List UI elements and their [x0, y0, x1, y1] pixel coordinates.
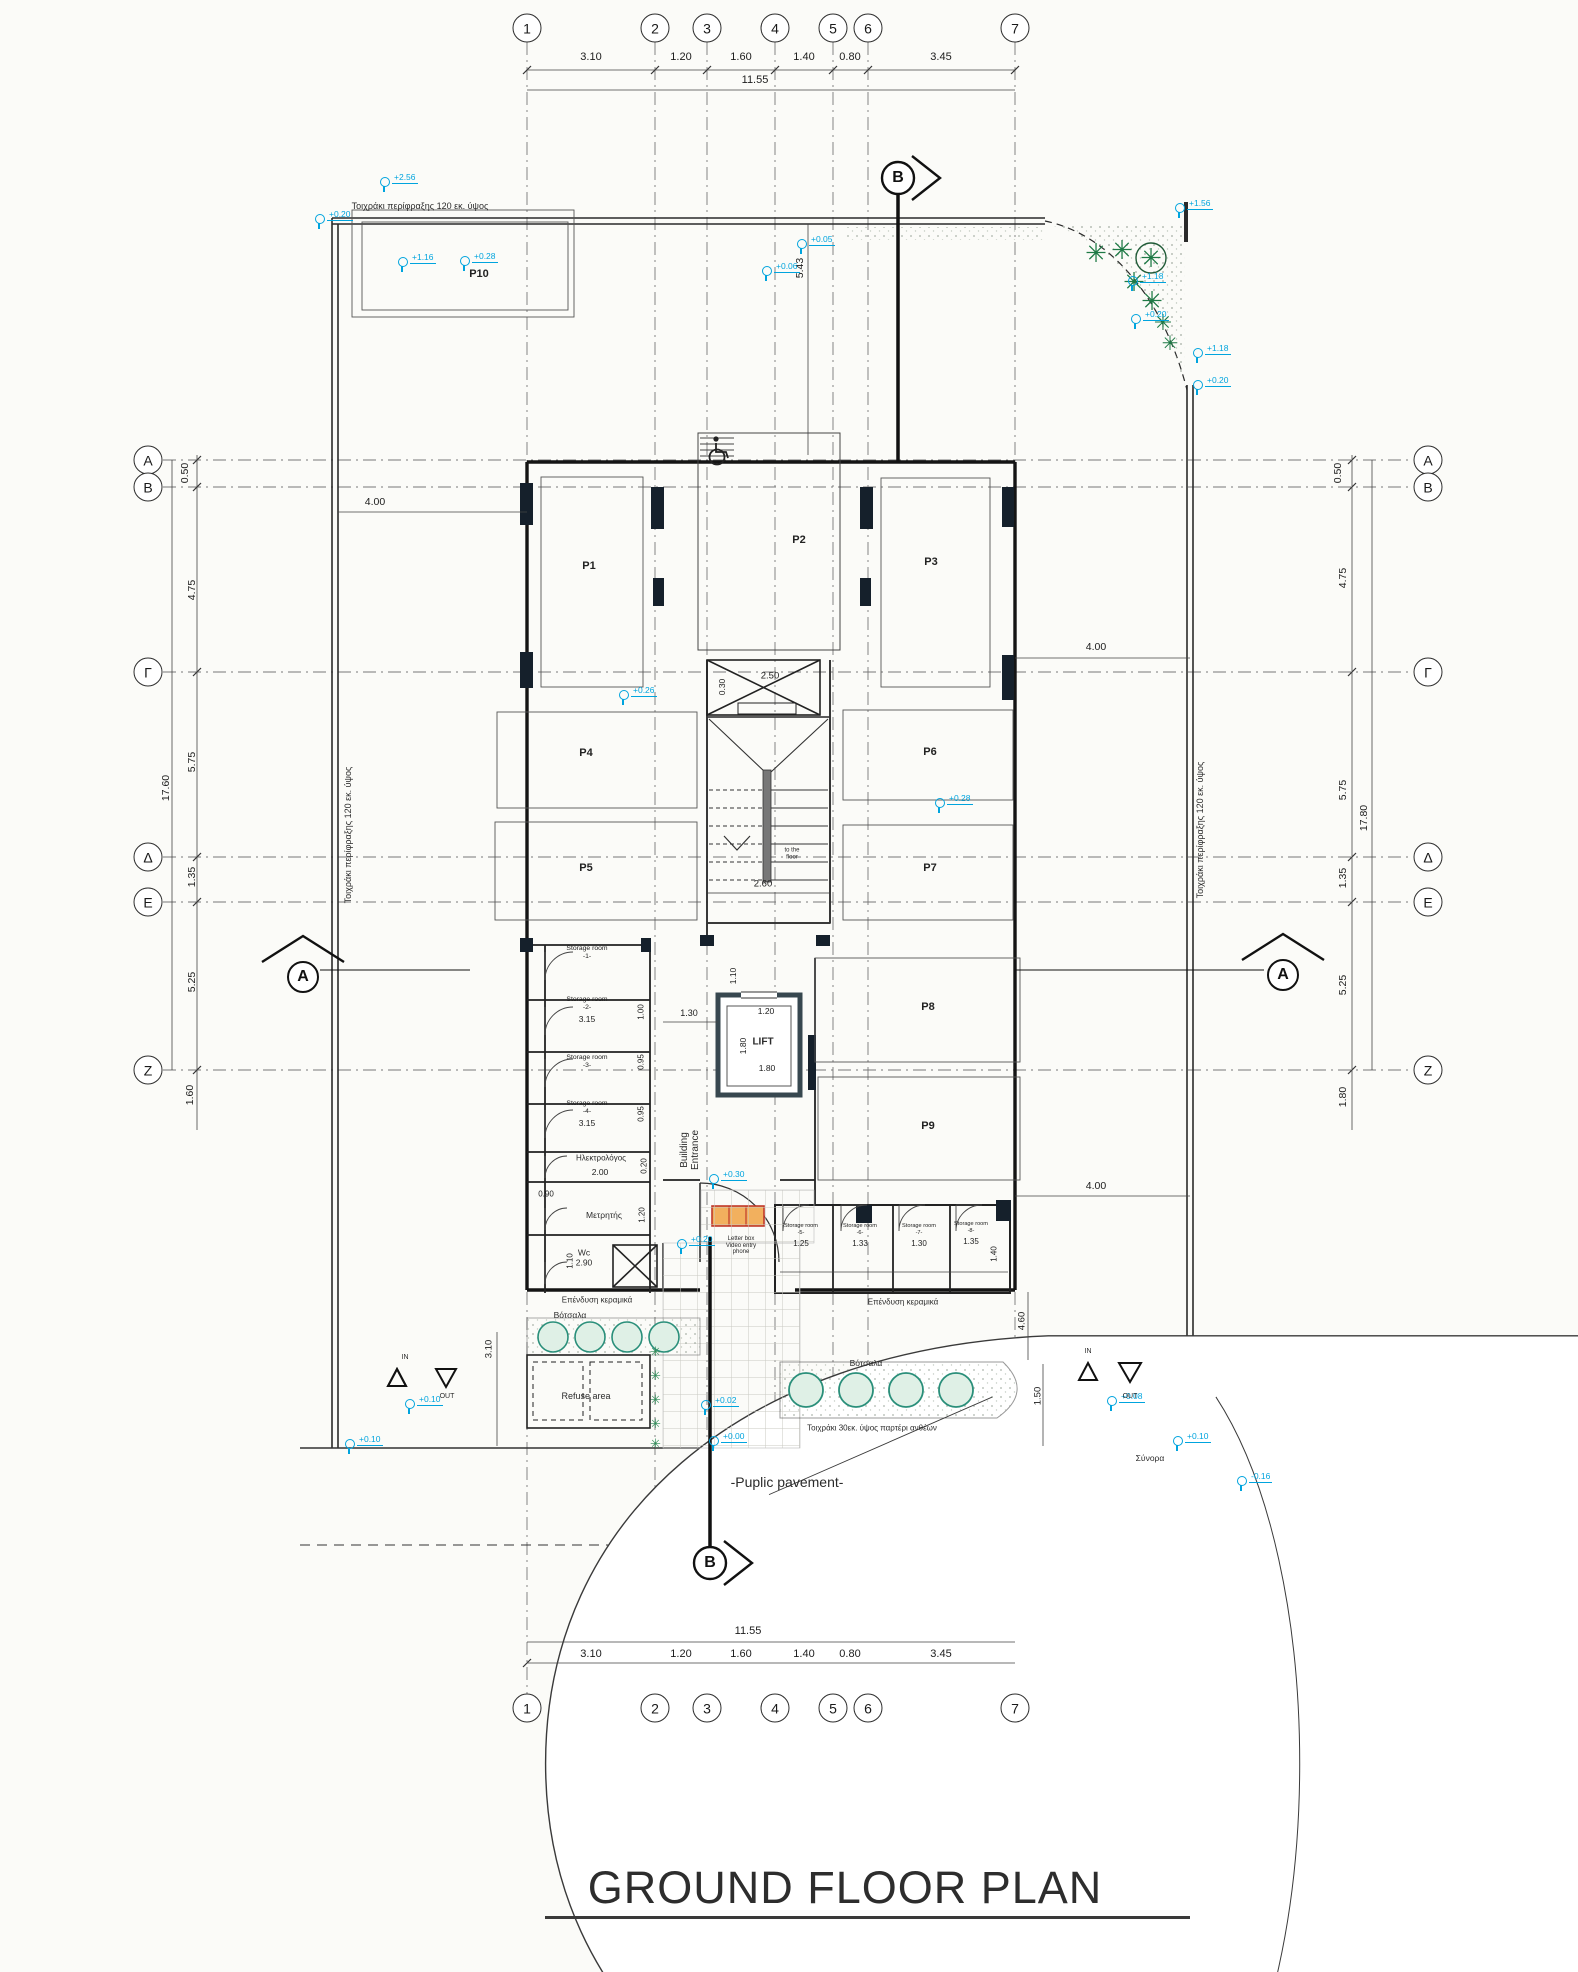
storage-room-label-l3: 1.35	[954, 1237, 988, 1247]
fence-note-right: Τοιχράκι περίφραξης 120 εκ. ύψος	[1195, 762, 1205, 899]
level-value: +1.18	[1205, 344, 1231, 355]
dimension-label: 4.75	[1337, 568, 1349, 588]
grid-column-1: 1	[513, 14, 542, 43]
level-marker: +0.20	[677, 1235, 715, 1249]
section-a-left: A	[297, 968, 309, 986]
dimension-label: 3.45	[930, 1648, 951, 1660]
level-value: -0.16	[1249, 1472, 1272, 1483]
meter-room-label: Μετρητής	[586, 1211, 622, 1221]
level-marker-icon	[460, 256, 470, 266]
level-marker-icon	[380, 177, 390, 187]
grid-row-A: A	[1414, 446, 1443, 475]
out-label-right: OUT	[1123, 1393, 1138, 1401]
level-marker-icon	[935, 798, 945, 808]
dimension-label: 3.10	[484, 1340, 495, 1359]
level-marker-icon	[1131, 314, 1141, 324]
level-marker-icon	[797, 239, 807, 249]
level-value: +0.26	[631, 686, 657, 697]
level-marker-icon	[701, 1400, 711, 1410]
dimension-label: 1.35	[186, 867, 198, 887]
dimension-label: 1.80	[759, 1063, 776, 1073]
level-marker-icon	[1237, 1476, 1247, 1486]
storage-room-label-l3: 1.33	[843, 1239, 877, 1249]
sheet-title: GROUND FLOOR PLAN	[588, 1862, 1103, 1914]
level-marker-icon	[1128, 276, 1138, 286]
dimension-label: 1.30	[680, 1008, 698, 1018]
dimension-label: 1.10	[728, 968, 738, 985]
level-marker-icon	[1173, 1436, 1183, 1446]
storage-room-label-l3: 3.15	[566, 1014, 607, 1024]
dimension-label: 0.50	[1332, 463, 1344, 483]
storage-room-label: Storage room-2-3.15	[566, 996, 607, 1025]
grid-row-A: A	[134, 446, 163, 475]
grid-column-3: 3	[693, 14, 722, 43]
level-value: +1.16	[410, 253, 436, 264]
dimension-label: 2.50	[761, 671, 780, 682]
grid-row-Δ: Δ	[1414, 843, 1443, 872]
storage-room-label: Storage room-1-	[566, 945, 607, 961]
pebbles-label-left: Βότσαλα	[554, 1311, 587, 1321]
parking-label-p9: P9	[921, 1120, 934, 1132]
dimension-label: 1.60	[730, 51, 751, 63]
planting-strip: ✳✳ ✳✳✳	[650, 1344, 661, 1451]
grid-column-2: 2	[641, 14, 670, 43]
level-marker: +1.56	[1175, 199, 1213, 213]
level-value: +0.00	[721, 1432, 747, 1443]
dimension-label: 0.95	[637, 1054, 646, 1070]
level-marker: +1.18	[1193, 344, 1231, 358]
dimension-label: 1.60	[184, 1085, 196, 1105]
parking-label-p6: P6	[923, 746, 936, 758]
dimension-label: 0.50	[179, 463, 191, 483]
grid-column-7: 7	[1001, 1694, 1030, 1723]
grid-row-Γ: Γ	[134, 658, 163, 687]
dimension-label: 1.40	[793, 51, 814, 63]
storage-room-label: Storage room-6-1.33	[843, 1223, 877, 1249]
level-value: +0.06	[774, 262, 800, 273]
dimension-label: 3.10	[580, 51, 601, 63]
level-value: +0.20	[1143, 310, 1169, 321]
storage-room-label: Storage room-3-	[566, 1054, 607, 1070]
level-marker: +0.10	[405, 1395, 443, 1409]
wc-label: Wc 2.90	[576, 1248, 593, 1267]
dimension-label: 1.10	[566, 1253, 575, 1269]
grid-column-1: 1	[513, 1694, 542, 1723]
level-marker: +0.00	[709, 1432, 747, 1446]
level-marker: -0.16	[1237, 1472, 1272, 1486]
dimension-label: 1.40	[793, 1648, 814, 1660]
dimension-label: 11.55	[742, 74, 769, 86]
parking-label-p4: P4	[579, 747, 592, 759]
level-value: +1.18	[1140, 272, 1166, 283]
grid-row-Z: Z	[1414, 1056, 1443, 1085]
building-entrance-label: Building Entrance	[679, 1130, 701, 1170]
ceramic-cladding-label-right: Επένδυση κεραμικά	[868, 1299, 939, 1308]
fence-note-top: Τοιχράκι περίφραξης 120 εκ. ύψος	[352, 201, 489, 211]
level-value: +0.28	[472, 252, 498, 263]
parking-label-p3: P3	[924, 556, 937, 568]
storage-room-label-l1: Storage room	[954, 1221, 988, 1228]
storage-room-label: Storage room-4-3.15	[566, 1100, 607, 1129]
storage-room-label-l1: Storage room	[566, 996, 607, 1004]
dimension-label: 2.00	[592, 1167, 609, 1177]
level-marker-icon	[709, 1436, 719, 1446]
dimension-label: 17.60	[160, 775, 172, 801]
level-marker: +0.20	[1131, 310, 1169, 324]
level-value: +0.20	[327, 210, 353, 221]
storage-room-label-l2: -5-	[784, 1230, 818, 1237]
dimension-label: 1.20	[670, 51, 691, 63]
storage-room-label-l1: Storage room	[843, 1223, 877, 1230]
level-value: +0.20	[1205, 376, 1231, 387]
dimension-label: 0.20	[640, 1158, 649, 1174]
storage-room-label: Storage room-5-1.25	[784, 1223, 818, 1249]
dimension-label: 0.80	[839, 1648, 860, 1660]
parking-label-p10: P10	[469, 268, 489, 280]
level-value: +0.10	[1185, 1432, 1211, 1443]
level-value: +2.56	[392, 173, 418, 184]
flowerbed-note: Τοιχράκι 30εκ. ύψος παρτέρι ανθέων	[807, 1425, 937, 1434]
dimension-label: 4.60	[1017, 1312, 1028, 1331]
storage-room-label-l3: 3.15	[566, 1118, 607, 1128]
level-value: +0.10	[357, 1435, 383, 1446]
storage-room-label-l2: -2-	[566, 1004, 607, 1012]
level-marker: +0.20	[1193, 376, 1231, 390]
level-marker-icon	[762, 266, 772, 276]
electrician-room-label: Ηλεκτρολόγος	[576, 1155, 626, 1164]
level-marker: +0.28	[935, 794, 973, 808]
level-marker-icon	[709, 1174, 719, 1184]
svg-text:✳: ✳	[1111, 235, 1133, 265]
storage-room-label-l2: -4-	[566, 1108, 607, 1116]
parking-label-p1: P1	[582, 560, 595, 572]
parking-label-p8: P8	[921, 1001, 934, 1013]
in-label-right: IN	[1085, 1348, 1092, 1356]
level-marker: +0.30	[709, 1170, 747, 1184]
flower-bed-right	[780, 1362, 1017, 1418]
dimension-label: 1.40	[990, 1246, 999, 1262]
svg-text:✳: ✳	[650, 1344, 661, 1359]
section-b-top: B	[892, 169, 904, 187]
pebbles-label-right: Βότσαλα	[850, 1359, 883, 1369]
pebble-bed-left	[527, 1318, 700, 1355]
storage-room-label-l1: Storage room	[566, 1054, 607, 1062]
boundary-label: Σύνορα	[1136, 1454, 1165, 1464]
storage-room-label-l2: -8-	[954, 1228, 988, 1235]
ceramic-cladding-label-left: Επένδυση κεραμικά	[562, 1297, 633, 1306]
storage-room-label-l2: -7-	[902, 1230, 936, 1237]
level-marker: +1.18	[1128, 272, 1166, 286]
grid-column-6: 6	[854, 14, 883, 43]
dimension-label: 5.75	[1337, 780, 1349, 800]
level-marker-icon	[619, 690, 629, 700]
section-a-right: A	[1277, 966, 1289, 984]
level-marker-icon	[315, 214, 325, 224]
parking-label-p2: P2	[792, 534, 805, 546]
grid-row-Γ: Γ	[1414, 658, 1443, 687]
storage-room-label: Storage room-7-1.30	[902, 1223, 936, 1249]
storage-room-label-l2: -3-	[566, 1062, 607, 1070]
public-pavement-label: -Puplic pavement-	[731, 1475, 844, 1491]
level-marker-icon	[1107, 1396, 1117, 1406]
level-value: +0.30	[721, 1170, 747, 1181]
dimension-label: 0.95	[637, 1106, 646, 1122]
dimension-label: 5.75	[186, 752, 198, 772]
grid-column-7: 7	[1001, 14, 1030, 43]
dimension-label: 5.25	[1337, 975, 1349, 995]
stairs	[707, 717, 830, 923]
grid-row-E: E	[1414, 888, 1443, 917]
level-marker: +0.26	[619, 686, 657, 700]
svg-text:✳: ✳	[650, 1368, 661, 1383]
level-value: +0.05	[809, 235, 835, 246]
p2-court	[698, 433, 840, 650]
storage-room-label-l1: Storage room	[902, 1223, 936, 1230]
title-underline	[545, 1916, 1190, 1919]
out-label-left: OUT	[440, 1393, 455, 1401]
grid-column-5: 5	[819, 14, 848, 43]
grid-column-3: 3	[693, 1694, 722, 1723]
parking-label-p7: P7	[923, 862, 936, 874]
grid-row-E: E	[134, 888, 163, 917]
dimension-label: 1.60	[730, 1648, 751, 1660]
level-marker-icon	[345, 1439, 355, 1449]
svg-text:✳: ✳	[650, 1436, 661, 1451]
refuse-area-label: Refuse area	[561, 1391, 610, 1401]
grid-row-B: B	[1414, 473, 1443, 502]
svg-text:✳: ✳	[650, 1392, 661, 1407]
level-marker-icon	[405, 1399, 415, 1409]
level-value: +1.56	[1187, 199, 1213, 210]
storage-room-label: Storage room-8-1.35	[954, 1221, 988, 1247]
dimension-label: 1.20	[638, 1207, 647, 1223]
dimension-label: 1.20	[670, 1648, 691, 1660]
lift-label: LIFT	[752, 1036, 773, 1047]
dimension-label: 3.45	[930, 51, 951, 63]
parking-label-p5: P5	[579, 862, 592, 874]
level-marker: +0.28	[460, 252, 498, 266]
level-marker: +2.56	[380, 173, 418, 187]
dimension-label: 0.30	[717, 679, 727, 696]
dimension-label: 11.55	[735, 1625, 762, 1637]
dimension-label: 1.20	[758, 1006, 775, 1016]
grid-column-4: 4	[761, 14, 790, 43]
level-marker: +0.20	[315, 210, 353, 224]
storage-room-label-l1: Storage room	[566, 1100, 607, 1108]
grid-row-B: B	[134, 473, 163, 502]
dimension-label: 3.10	[580, 1648, 601, 1660]
level-value: +0.20	[689, 1235, 715, 1246]
dimension-label: 1.50	[1033, 1387, 1044, 1406]
storage-room-label-l1: Storage room	[784, 1223, 818, 1230]
level-marker-icon	[398, 257, 408, 267]
dimension-label: 17.80	[1358, 805, 1370, 831]
level-marker: +1.16	[398, 253, 436, 267]
dimension-label: 2.60	[754, 879, 773, 890]
section-b-bottom: B	[704, 1554, 716, 1572]
svg-text:✳: ✳	[1085, 238, 1107, 268]
storage-room-label-l3: 1.25	[784, 1239, 818, 1249]
dimension-label: 1.80	[1337, 1087, 1349, 1107]
grid-column-2: 2	[641, 1694, 670, 1723]
grid-column-4: 4	[761, 1694, 790, 1723]
dimension-label: 4.75	[186, 580, 198, 600]
dimension-label: 0.90	[538, 1190, 554, 1199]
grid-column-5: 5	[819, 1694, 848, 1723]
level-marker: +0.05	[797, 235, 835, 249]
dimension-label: 0.80	[839, 51, 860, 63]
parking-bays	[352, 210, 1020, 1180]
dimension-label: 1.35	[1337, 868, 1349, 888]
letterbox-label: Letter box Video entry phone	[726, 1236, 756, 1256]
stairs-note: to the floor	[784, 847, 799, 860]
dimension-label: 4.00	[1086, 641, 1106, 653]
in-label-left: IN	[402, 1354, 409, 1362]
level-marker-icon	[1193, 348, 1203, 358]
ground-floor-plan-sheet: ✳✳ ✳✳✳ ✳✳✳ ✳✳ ✳✳	[0, 0, 1578, 1972]
storage-room-label-l2: -6-	[843, 1230, 877, 1237]
dimension-label: 5.25	[186, 972, 198, 992]
storage-room-label-l1: Storage room	[566, 945, 607, 953]
storage-room-label-l2: -1-	[566, 953, 607, 961]
level-value: +0.28	[947, 794, 973, 805]
grid-row-Δ: Δ	[134, 843, 163, 872]
dimension-label: 1.00	[637, 1004, 646, 1020]
level-marker: +0.10	[345, 1435, 383, 1449]
dimension-label: 4.00	[1086, 1180, 1106, 1192]
level-marker-icon	[677, 1239, 687, 1249]
storage-room-label-l3: 1.30	[902, 1239, 936, 1249]
svg-text:✳: ✳	[1162, 333, 1179, 355]
grid-row-Z: Z	[134, 1056, 163, 1085]
level-marker-icon	[1175, 203, 1185, 213]
level-marker: +0.06	[762, 262, 800, 276]
dimension-label: 1.80	[738, 1038, 748, 1055]
level-value: +0.02	[713, 1396, 739, 1407]
level-marker: +0.10	[1173, 1432, 1211, 1446]
fence-note-left: Τοιχράκι περίφραξης 120 εκ. ύψος	[343, 767, 353, 904]
dimension-label: 4.00	[365, 496, 385, 508]
level-marker: +0.02	[701, 1396, 739, 1410]
level-marker-icon	[1193, 380, 1203, 390]
svg-text:✳: ✳	[650, 1416, 661, 1431]
grid-column-6: 6	[854, 1694, 883, 1723]
